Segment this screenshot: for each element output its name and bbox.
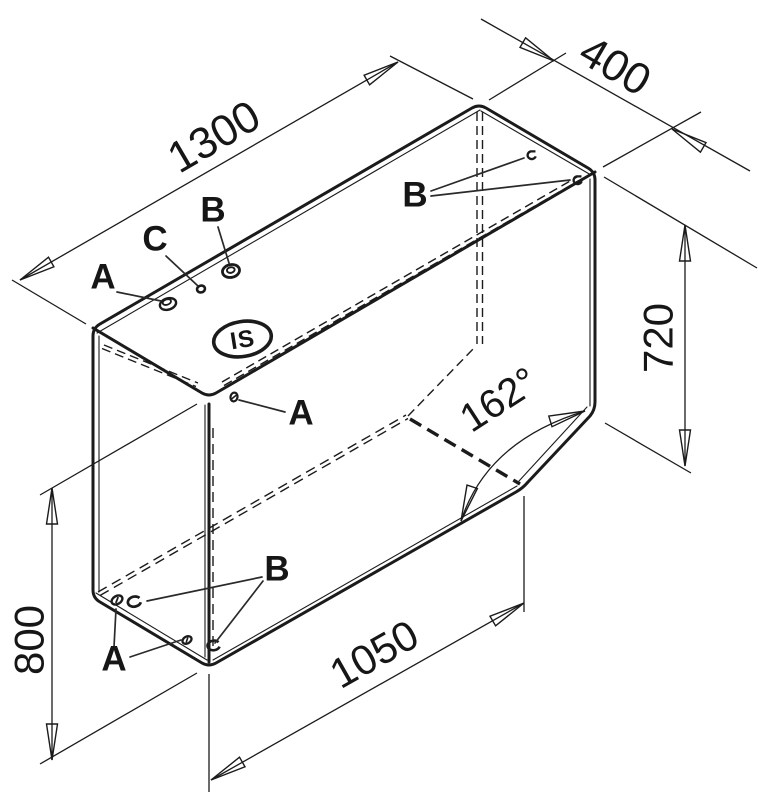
fitting-a-plug-icon <box>158 296 177 312</box>
arrowhead <box>520 38 554 61</box>
arrowhead <box>549 411 585 427</box>
label-a-middle: A <box>239 394 314 433</box>
dimension-front-height: 800 <box>6 404 198 764</box>
fitting-b-hook-icon <box>527 151 537 160</box>
logo-text: IS <box>228 325 257 356</box>
bottom-back-hidden-edge <box>98 415 406 592</box>
label-a-text: A <box>288 394 313 433</box>
dim-front-height-text: 800 <box>6 605 53 675</box>
extension-line <box>390 56 473 99</box>
arrowhead <box>364 62 398 85</box>
label-a-text: A <box>101 640 126 679</box>
extension-line <box>40 404 197 495</box>
arrowhead <box>672 129 706 152</box>
leader-line <box>431 180 570 196</box>
label-b-text: B <box>200 191 225 230</box>
leader-line <box>218 227 229 263</box>
arrowhead <box>490 603 524 626</box>
dim-right-height-text: 720 <box>635 303 682 373</box>
label-b-right: B <box>402 158 570 215</box>
label-a-bottom: A <box>101 609 181 679</box>
label-b-text: B <box>402 176 427 215</box>
label-a-text: A <box>90 258 115 297</box>
dim-top-length-text: 1300 <box>159 91 268 183</box>
extension-line <box>40 673 197 764</box>
angle-dimension-chamfer: 162° <box>452 359 585 521</box>
dimension-depth: 400 <box>481 19 750 171</box>
fitting-a-plug-icon <box>230 392 239 402</box>
top-right-hidden-seam <box>222 177 577 382</box>
dimension-bottom-length: 1050 <box>209 496 524 792</box>
leader-line <box>130 640 181 657</box>
fitting-b-cap-icon <box>221 263 240 279</box>
arrowhead <box>20 257 54 280</box>
is-logo: IS <box>211 317 274 361</box>
extension-line <box>12 280 86 324</box>
arrowhead <box>211 757 245 780</box>
dimension-right-height: 720 <box>604 177 757 473</box>
label-c-text: C <box>142 220 167 259</box>
chamfer-bottom-hidden-edge <box>410 419 520 484</box>
extension-line <box>603 112 701 167</box>
dim-bottom-length-text: 1050 <box>322 611 426 698</box>
dim-chamfer-angle-text: 162° <box>452 359 545 441</box>
isometric-tank-drawing: 1300 400 720 800 1050 <box>0 0 758 800</box>
label-b-text: B <box>264 550 289 589</box>
top-left-hidden-seam <box>104 345 198 383</box>
leader-line <box>239 400 285 412</box>
fitting-b-ring-icon <box>127 595 142 607</box>
extension-line <box>605 423 691 473</box>
leader-line <box>215 581 263 643</box>
fitting-a-plug-icon <box>181 635 193 646</box>
dim-depth-text: 400 <box>571 26 659 105</box>
fitting-a-plug-icon <box>110 594 124 607</box>
label-c-top: C <box>142 220 198 287</box>
dimension-line <box>20 62 398 280</box>
